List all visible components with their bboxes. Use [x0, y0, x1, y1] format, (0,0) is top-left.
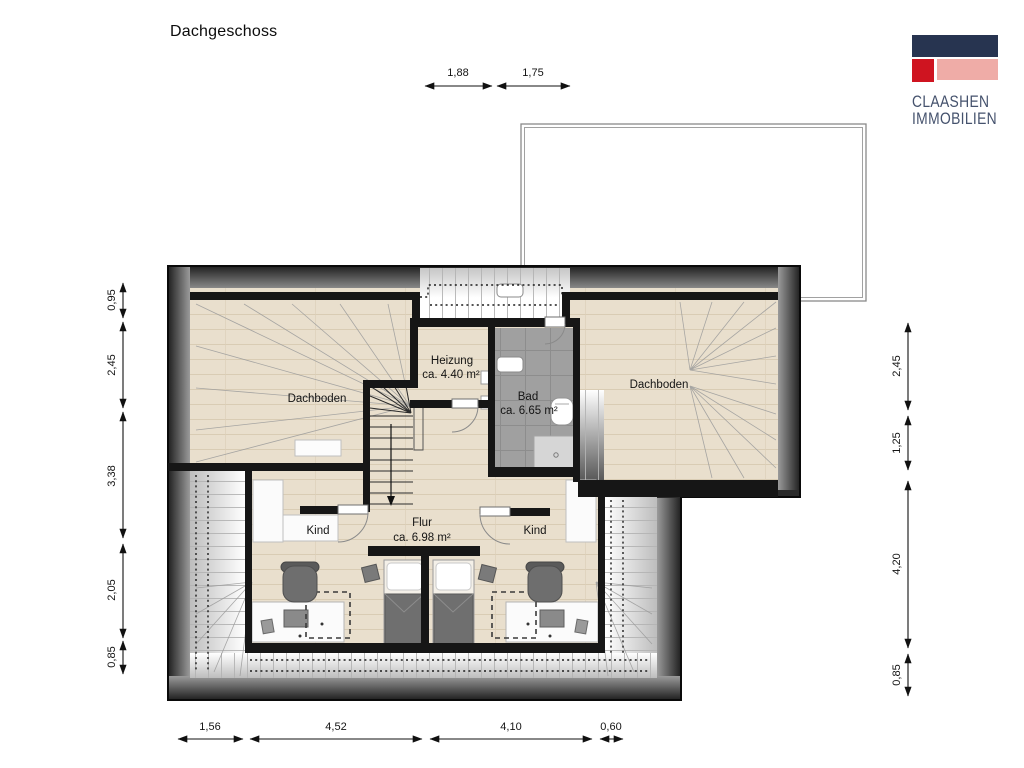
room-label-heizung: Heizung	[431, 355, 473, 367]
logo-mark	[912, 35, 1000, 83]
dim-right-3: 4,20	[891, 553, 903, 574]
dim-bottom-3: 4,10	[500, 721, 521, 733]
dim-left-4: 2,05	[106, 579, 118, 600]
room-label-bad: Bad	[518, 391, 538, 403]
page-title: Dachgeschoss	[170, 23, 277, 41]
logo-pink-bar	[937, 59, 998, 80]
room-area-flur: ca. 6.98 m²	[393, 532, 451, 544]
dim-left-5: 0,85	[106, 646, 118, 667]
room-label-dachboden-left: Dachboden	[288, 393, 347, 405]
floor-plan-drawing	[0, 0, 1024, 768]
dim-left-2: 2,45	[106, 354, 118, 375]
dim-right-4: 0,85	[891, 664, 903, 685]
dim-top-1: 1,88	[447, 67, 468, 79]
dim-right-1: 2,45	[891, 355, 903, 376]
dim-top-2: 1,75	[522, 67, 543, 79]
floorplan-page: Dachgeschoss CLAASHEN IMMOBILIEN Dachbod…	[0, 0, 1024, 768]
logo-navy-bar	[912, 35, 998, 57]
logo-red-square	[912, 59, 934, 82]
room-area-heizung: ca. 4.40 m²	[422, 369, 480, 381]
room-area-bad: ca. 6.65 m²	[500, 405, 558, 417]
dim-left-1: 0,95	[106, 289, 118, 310]
logo-text-line2: IMMOBILIEN	[912, 110, 997, 129]
room-label-kind-right: Kind	[523, 525, 546, 537]
dim-right-2: 1,25	[891, 432, 903, 453]
room-label-dachboden-right: Dachboden	[630, 379, 689, 391]
room-label-kind-left: Kind	[306, 525, 329, 537]
dim-bottom-1: 1,56	[199, 721, 220, 733]
dim-bottom-4: 0,60	[600, 721, 621, 733]
dim-left-3: 3,38	[106, 465, 118, 486]
dim-bottom-2: 4,52	[325, 721, 346, 733]
room-label-flur: Flur	[412, 517, 432, 529]
